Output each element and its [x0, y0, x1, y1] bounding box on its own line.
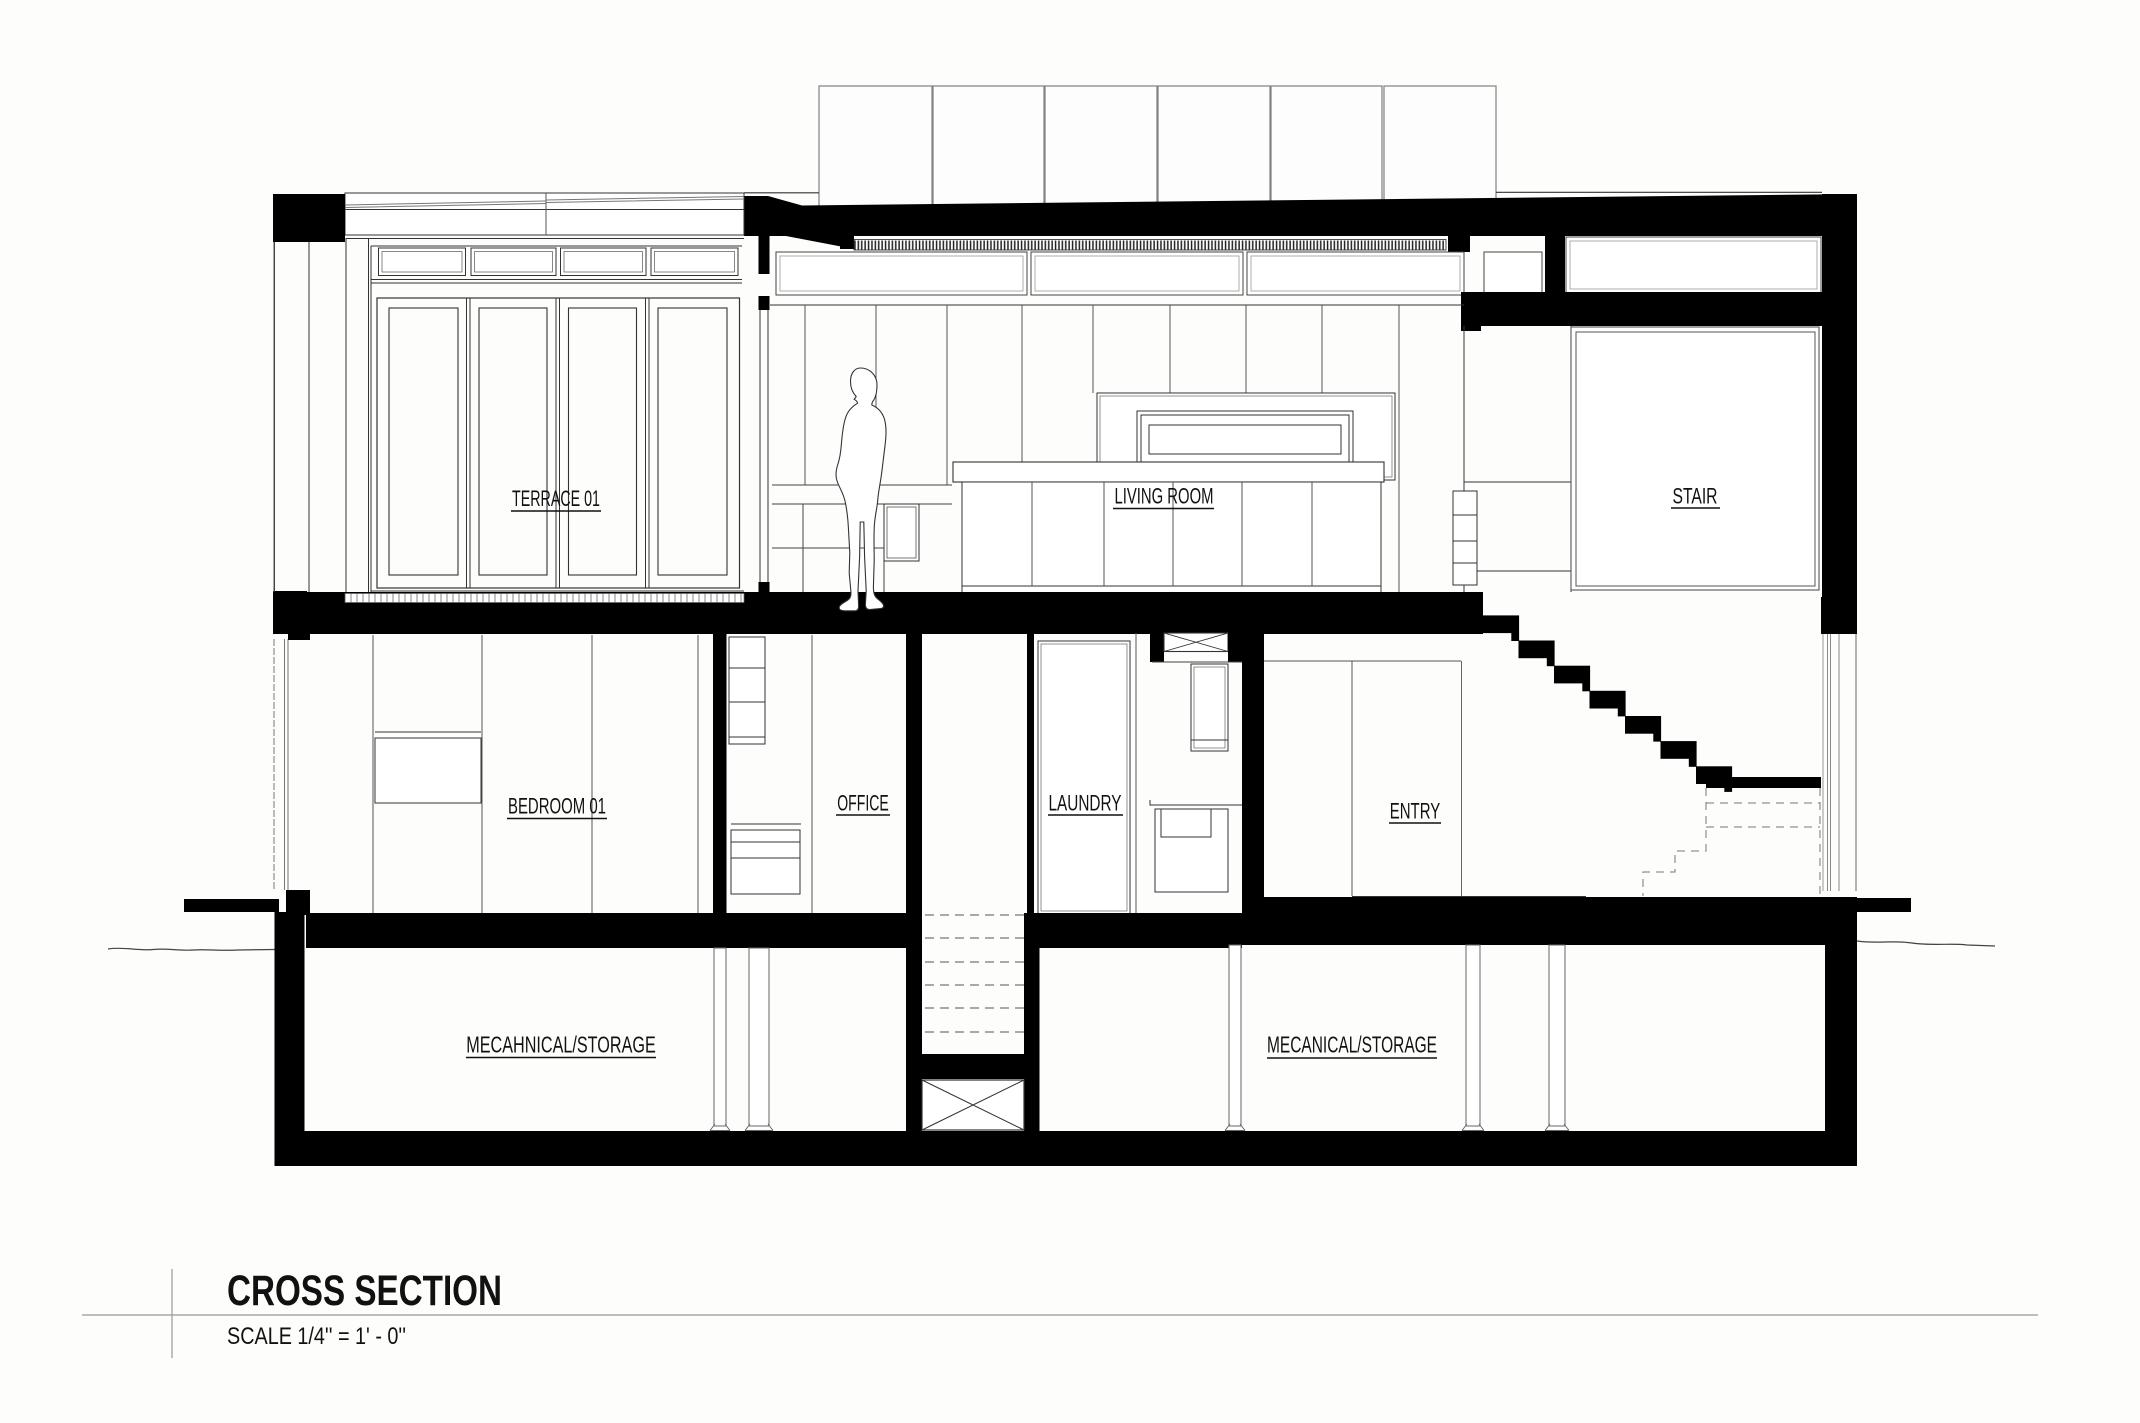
svg-text:LIVING ROOM: LIVING ROOM [1115, 484, 1214, 509]
svg-text:TERRACE 01: TERRACE 01 [512, 486, 600, 511]
svg-text:STAIR: STAIR [1673, 484, 1718, 509]
svg-text:CROSS SECTION: CROSS SECTION [227, 1267, 502, 1315]
svg-text:SCALE 1/4'' = 1' - 0'': SCALE 1/4'' = 1' - 0'' [227, 1323, 406, 1350]
svg-text:MECAHNICAL/STORAGE: MECAHNICAL/STORAGE [466, 1032, 656, 1058]
svg-text:BEDROOM 01: BEDROOM 01 [508, 794, 606, 819]
svg-text:OFFICE: OFFICE [837, 791, 889, 816]
svg-text:LAUNDRY: LAUNDRY [1049, 791, 1122, 816]
svg-text:MECANICAL/STORAGE: MECANICAL/STORAGE [1267, 1032, 1437, 1058]
svg-text:ENTRY: ENTRY [1390, 799, 1441, 824]
